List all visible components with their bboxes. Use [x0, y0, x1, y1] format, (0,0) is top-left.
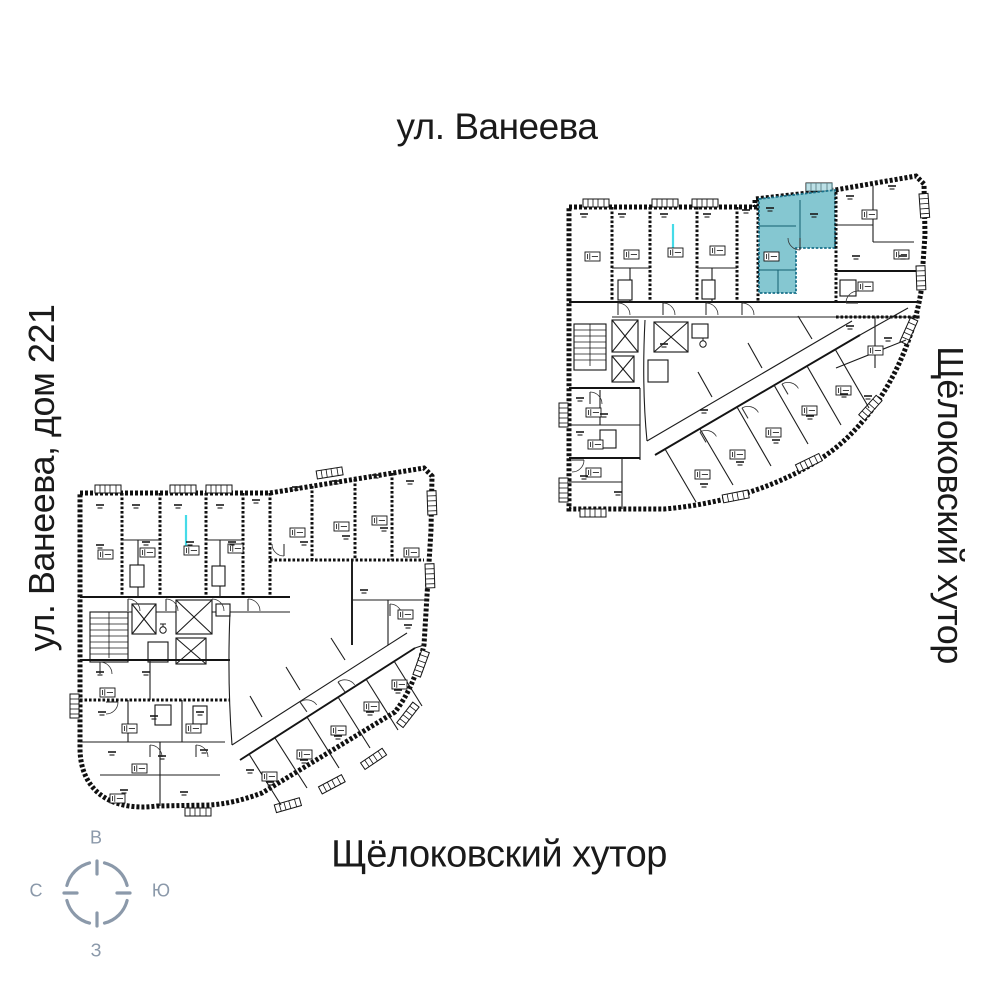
compass-letter-north: С [30, 881, 43, 902]
highlighted-balcony [806, 183, 833, 191]
site-plan-page: ул. Ванеева ул. Ванеева, дом 221 Щёлоков… [0, 0, 1000, 1000]
street-label-left: ул. Ванеева, дом 221 [21, 305, 63, 652]
floor-plan-upper [559, 176, 930, 517]
floor-plan-lower [70, 467, 437, 816]
area-label-right: Щёлоковский хутор [929, 346, 971, 664]
compass-letter-west: З [91, 941, 102, 962]
street-label-top: ул. Ванеева [397, 106, 598, 148]
compass-letter-south: Ю [152, 881, 170, 902]
compass-letter-east: В [90, 828, 102, 849]
area-label-bottom: Щёлоковский хутор [331, 834, 667, 877]
compass-rose [64, 861, 130, 926]
